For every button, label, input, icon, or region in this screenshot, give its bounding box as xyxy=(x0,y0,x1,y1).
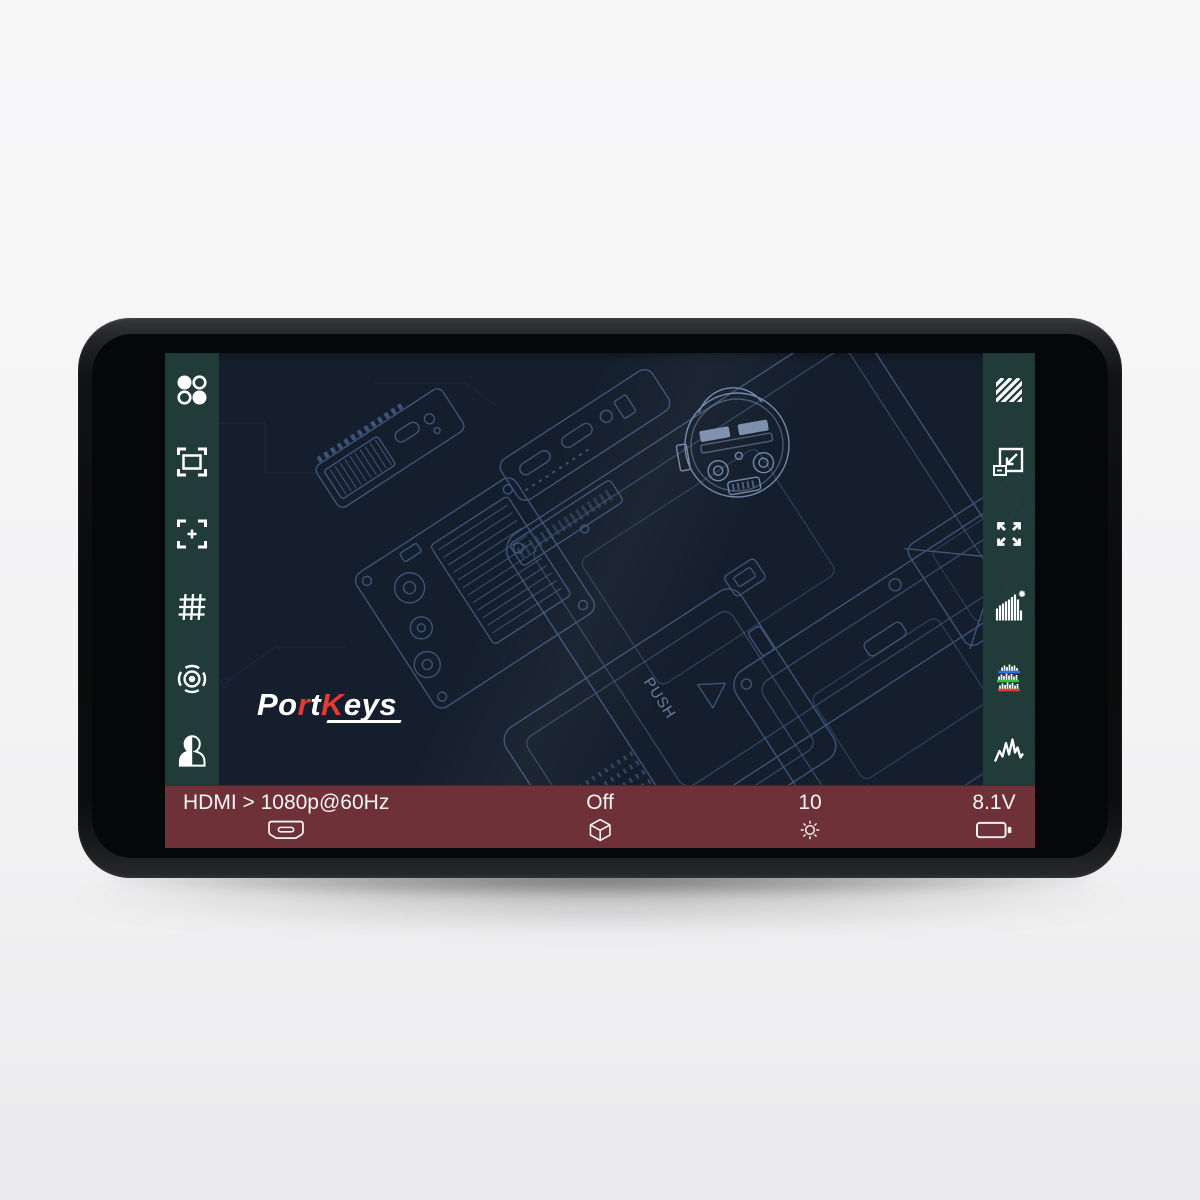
portrait-icon xyxy=(172,731,212,771)
toolbar-button-zebra[interactable] xyxy=(989,370,1029,410)
input-format-label: HDMI > 1080p@60Hz xyxy=(183,790,389,815)
expand-arrows-icon xyxy=(989,514,1029,554)
monitor-screen: PUSH xyxy=(165,353,1035,848)
toolbar-button-waveform[interactable] xyxy=(989,731,1029,771)
monitor-device: PUSH xyxy=(78,318,1122,878)
toolbar-button-rgb-parade[interactable] xyxy=(989,659,1029,699)
lut-status[interactable]: Off xyxy=(586,790,614,843)
toolbar-button-grid[interactable] xyxy=(172,587,212,627)
toolbar-button-center-marker[interactable] xyxy=(172,514,212,554)
portkeys-logo: PortKeys xyxy=(257,687,397,729)
zebra-stripes-icon xyxy=(989,370,1029,410)
target-icon xyxy=(172,659,212,699)
toolbar-button-portrait[interactable] xyxy=(172,731,212,771)
product-photo-stage: PUSH xyxy=(0,0,1200,1200)
four-dots-icon xyxy=(172,370,212,410)
battery-status[interactable]: 8.1V xyxy=(972,790,1015,843)
toolbar-button-pixel-zoom[interactable] xyxy=(989,442,1029,482)
battery-icon xyxy=(974,818,1014,843)
scale-down-icon xyxy=(989,442,1029,482)
blueprint-background-art: PUSH xyxy=(165,353,1035,848)
hdmi-icon xyxy=(266,818,306,843)
logo-segment: t xyxy=(310,687,321,723)
left-toolbar xyxy=(165,353,219,785)
brightness-value: 10 xyxy=(798,790,821,815)
toolbar-button-target[interactable] xyxy=(172,659,212,699)
logo-segment: K xyxy=(321,687,344,723)
input-status[interactable]: HDMI > 1080p@60Hz xyxy=(183,790,389,843)
right-toolbar xyxy=(983,353,1035,785)
toolbar-button-menu[interactable] xyxy=(172,370,212,410)
rgb-parade-icon xyxy=(989,659,1029,699)
histogram-icon xyxy=(989,587,1029,627)
waveform-icon xyxy=(989,731,1029,771)
brightness-status[interactable]: 10 xyxy=(797,790,823,843)
blueprint-push-label: PUSH xyxy=(640,675,679,723)
safe-frame-icon xyxy=(172,442,212,482)
sun-icon xyxy=(797,817,823,843)
battery-voltage: 8.1V xyxy=(972,790,1015,815)
lut-value: Off xyxy=(586,790,614,815)
logo-segment: r xyxy=(298,687,311,723)
logo-underline xyxy=(326,720,401,723)
logo-segment: eys xyxy=(344,687,397,723)
toolbar-button-safe-frame[interactable] xyxy=(172,442,212,482)
toolbar-button-histogram[interactable] xyxy=(989,587,1029,627)
logo-segment: Po xyxy=(257,687,298,723)
cube-icon xyxy=(587,817,613,843)
status-bar: HDMI > 1080p@60Hz Off xyxy=(165,785,1035,848)
toolbar-button-fullscreen[interactable] xyxy=(989,514,1029,554)
grid-icon xyxy=(172,587,212,627)
center-marker-icon xyxy=(172,514,212,554)
